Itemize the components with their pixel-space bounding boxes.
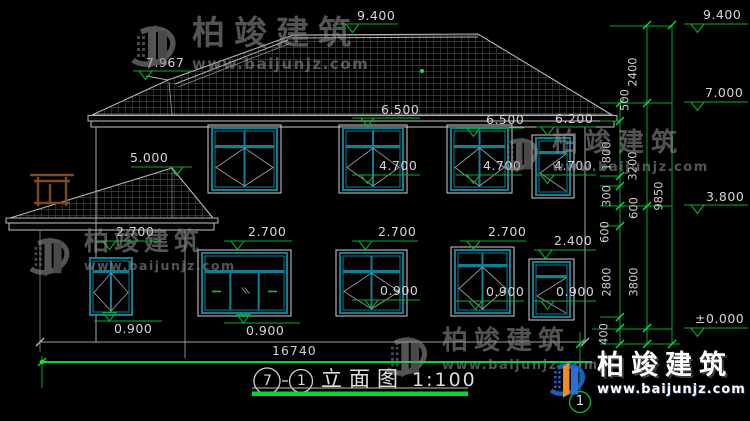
elevation-triangle — [539, 250, 552, 259]
elevation-label: 4.700 — [554, 160, 592, 173]
elevation-triangle — [691, 328, 704, 337]
cad-elevation-drawing: 7.9679.4009.4007.0003.800±0.0005.0006.50… — [0, 0, 750, 421]
elevation-label: 4.700 — [483, 160, 521, 173]
elevation-label: 5.000 — [130, 152, 168, 165]
window — [198, 250, 291, 316]
left-ridge-line — [146, 76, 168, 80]
elevation-label: 6.500 — [381, 104, 419, 117]
elevation-label: 2.700 — [488, 226, 526, 239]
elevation-triangle — [139, 71, 152, 80]
vertical-dim-label: 1800 — [601, 141, 613, 170]
title-green-bar — [252, 392, 468, 397]
elevation-label: 2.400 — [554, 235, 592, 248]
window-transom — [205, 270, 284, 273]
title-axis-from: 7 — [263, 374, 272, 388]
vertical-dim-label: 500 — [619, 89, 631, 111]
elevation-label: 2.700 — [116, 226, 154, 239]
window — [451, 247, 514, 316]
main-eave-fascia — [91, 121, 614, 127]
elevation-triangle — [691, 205, 704, 214]
porch-eave-band — [6, 218, 218, 223]
vertical-dim-label: 9850 — [653, 181, 665, 210]
elevation-label: 6.200 — [555, 113, 593, 126]
brand-name: 柏竣建筑 — [597, 351, 746, 381]
brand-url: www.baijunjz.com — [597, 382, 746, 397]
vertical-dim-label: 2400 — [627, 57, 639, 86]
vertical-dim-label: 400 — [598, 323, 610, 345]
porch-eave-fascia — [9, 223, 214, 230]
elevation-label: 9.400 — [357, 10, 395, 23]
vertical-dim-label: 2800 — [601, 267, 613, 296]
elevation-label: 9.400 — [703, 9, 741, 22]
window-frame — [202, 253, 287, 313]
elevation-triangle — [231, 241, 244, 250]
elevation-triangle — [359, 241, 372, 250]
axis-bubble-number: 1 — [575, 395, 585, 408]
elevation-label: 2.700 — [378, 226, 416, 239]
elevation-label: 7.967 — [146, 57, 184, 70]
brand-logo: 柏竣建筑 www.baijunjz.com — [543, 351, 746, 413]
elevation-triangle — [467, 241, 480, 250]
elevation-triangle — [541, 127, 554, 136]
title-axis-to: 1 — [297, 374, 306, 388]
elevation-label: 0.900 — [556, 286, 594, 299]
elevation-label: 0.900 — [486, 286, 524, 299]
elevation-label: 4.700 — [379, 160, 417, 173]
main-roof — [92, 34, 612, 115]
elevation-label: 3.800 — [706, 191, 744, 204]
window-transom — [539, 151, 567, 154]
window — [208, 125, 281, 193]
elevation-triangle — [691, 24, 704, 33]
vertical-dim-label: 600 — [599, 221, 611, 243]
elevation-label: 7.000 — [705, 87, 743, 100]
elevation-triangle — [691, 102, 704, 111]
vertical-dim-label: 600 — [628, 197, 640, 219]
elevation-label: ±0.000 — [695, 313, 744, 326]
stray-vertex-dot — [420, 69, 424, 73]
vertical-dim-label: 300 — [601, 185, 613, 207]
elevation-triangle — [103, 241, 116, 250]
elevation-label: 6.500 — [486, 114, 524, 127]
vertical-dim-label: 3200 — [627, 151, 639, 180]
elevation-label: 2.700 — [248, 226, 286, 239]
overall-dim-label: 16740 — [272, 345, 317, 358]
drawing-title: 立面图 — [321, 369, 405, 390]
drawing-scale: 1:100 — [412, 371, 477, 390]
window — [90, 258, 132, 315]
elevation-label: 0.900 — [114, 323, 152, 336]
elevation-label: 0.900 — [380, 285, 418, 298]
elevation-triangle — [346, 24, 359, 33]
window-transom — [536, 275, 567, 278]
elevation-label: 0.900 — [246, 325, 284, 338]
vertical-dim-label: 3800 — [628, 267, 640, 296]
